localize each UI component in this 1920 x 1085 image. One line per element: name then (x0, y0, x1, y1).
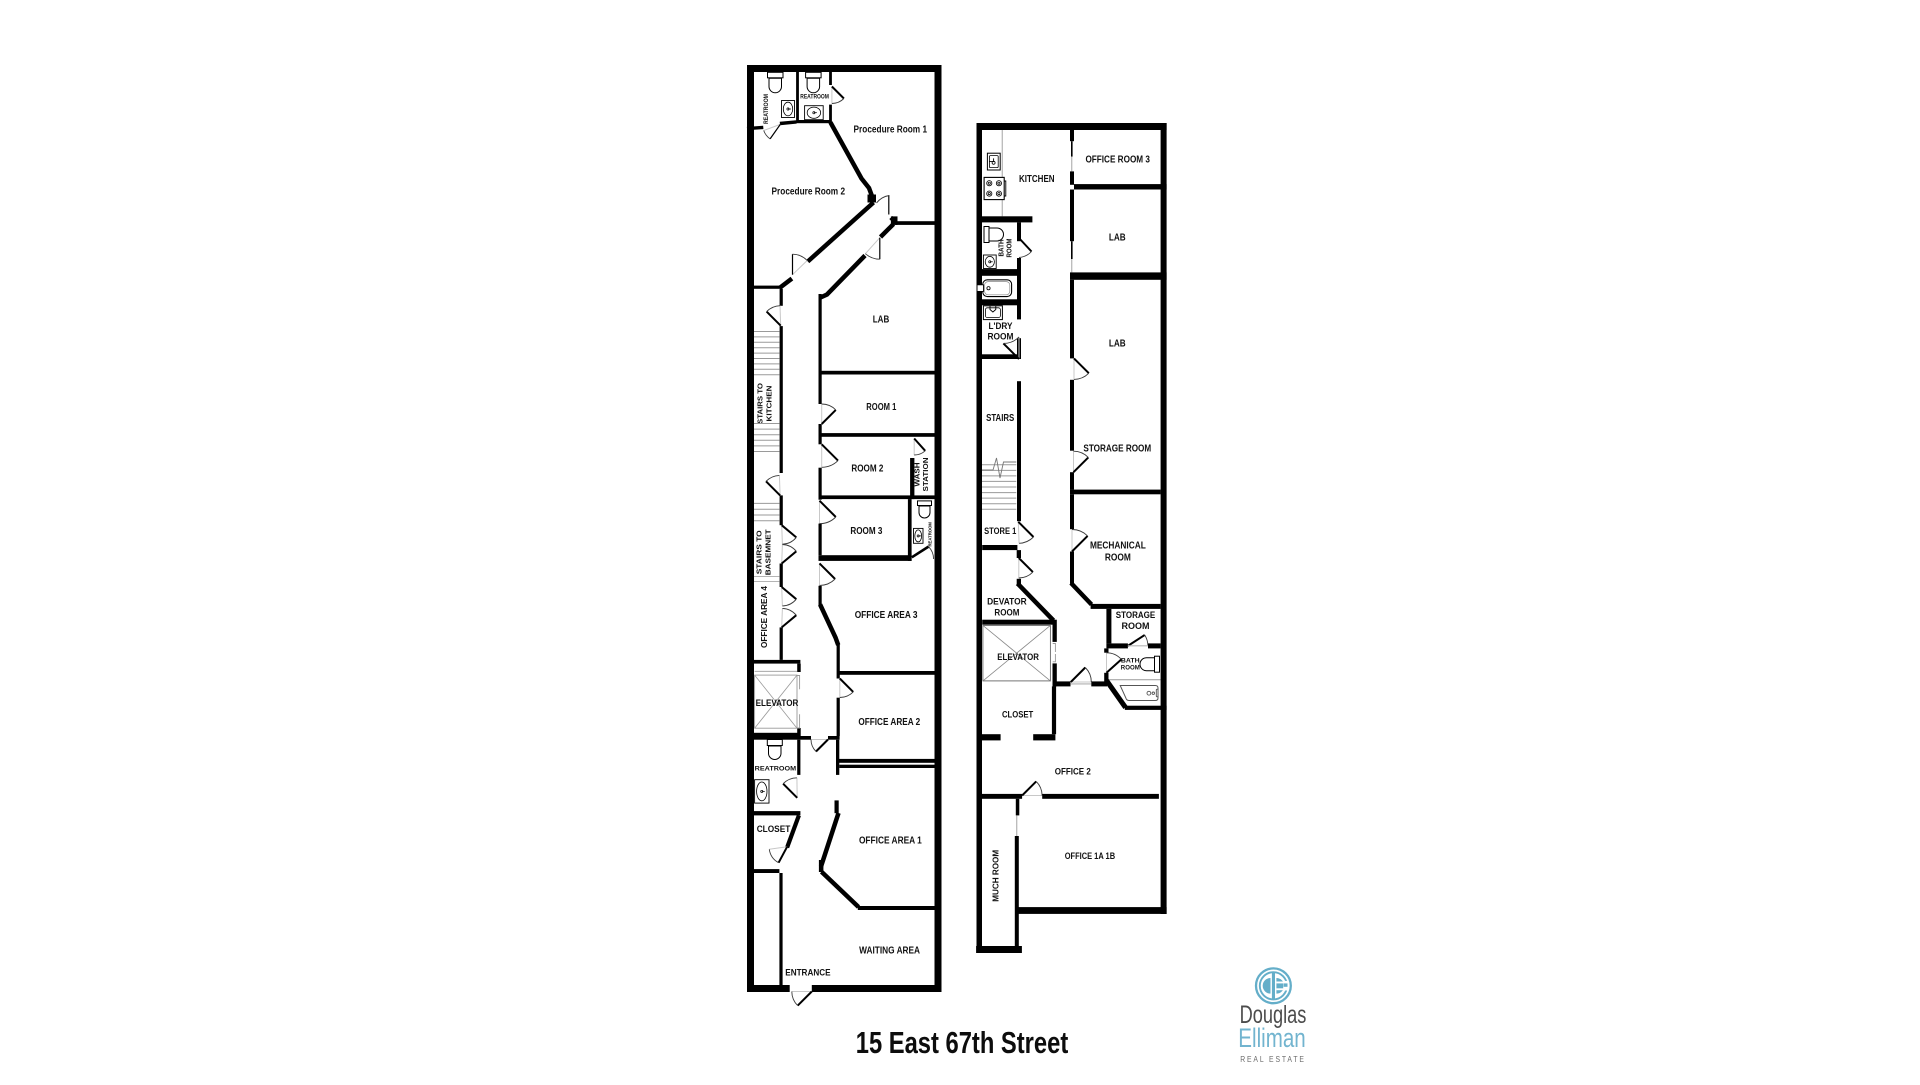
svg-text:WAITING AREA: WAITING AREA (859, 945, 920, 956)
svg-text:OFFICE 1A 1B: OFFICE 1A 1B (1065, 851, 1116, 862)
svg-text:STORAGE ROOM: STORAGE ROOM (1083, 443, 1151, 454)
svg-text:OFFICE 2: OFFICE 2 (1055, 766, 1091, 777)
svg-text:ROOM: ROOM (1121, 665, 1140, 672)
svg-text:OFFICE ROOM 3: OFFICE ROOM 3 (1085, 155, 1150, 166)
svg-text:CLOSET: CLOSET (1002, 710, 1033, 721)
svg-text:MECHANICAL: MECHANICAL (1090, 541, 1146, 552)
svg-text:BATH: BATH (1121, 657, 1140, 664)
svg-text:MUCH ROOM: MUCH ROOM (991, 850, 1001, 902)
svg-text:STATION: STATION (923, 458, 930, 492)
svg-text:STORE 1: STORE 1 (984, 526, 1017, 537)
svg-text:15 East 67th Street: 15 East 67th Street (856, 1025, 1069, 1060)
svg-text:REATROOM: REATROOM (755, 766, 797, 773)
svg-text:LAB: LAB (1109, 233, 1126, 244)
svg-text:ROOM 3: ROOM 3 (850, 526, 882, 537)
svg-text:STAIRS TO: STAIRS TO (755, 530, 764, 574)
svg-text:ROOM: ROOM (1122, 621, 1150, 632)
svg-text:LAB: LAB (873, 315, 890, 326)
svg-text:ROOM: ROOM (1007, 238, 1014, 257)
svg-text:WASH: WASH (915, 463, 922, 487)
svg-text:ROOM 1: ROOM 1 (866, 402, 896, 413)
svg-text:REATROOM: REATROOM (763, 94, 770, 124)
svg-text:ENTRANCE: ENTRANCE (785, 967, 830, 978)
svg-text:STORAGE: STORAGE (1116, 610, 1156, 621)
svg-text:L'DRY: L'DRY (989, 321, 1013, 331)
svg-text:ROOM 2: ROOM 2 (851, 464, 883, 475)
svg-text:Procedure Room 1: Procedure Room 1 (854, 125, 928, 136)
svg-text:Elliman: Elliman (1238, 1023, 1305, 1053)
svg-text:CLOSET: CLOSET (757, 824, 791, 835)
svg-text:KITCHEN: KITCHEN (765, 386, 774, 422)
svg-text:STAIRS: STAIRS (986, 413, 1014, 424)
svg-text:OFFICE AREA 1: OFFICE AREA 1 (859, 836, 922, 847)
svg-text:KITCHEN: KITCHEN (1019, 174, 1055, 185)
svg-text:DEVATOR: DEVATOR (987, 597, 1027, 608)
svg-text:OFFICE AREA 3: OFFICE AREA 3 (855, 610, 918, 621)
svg-text:REATROOM: REATROOM (800, 93, 829, 100)
svg-text:ROOM: ROOM (1105, 553, 1131, 564)
svg-text:REATROOM: REATROOM (928, 522, 934, 547)
svg-text:BASEMNET: BASEMNET (764, 529, 773, 576)
svg-text:REAL ESTATE: REAL ESTATE (1240, 1055, 1306, 1064)
svg-text:ROOM: ROOM (994, 608, 1019, 619)
svg-text:ROOM: ROOM (988, 332, 1014, 342)
svg-text:BATH: BATH (999, 240, 1006, 257)
svg-text:LAB: LAB (1109, 338, 1126, 349)
svg-text:ELEVATOR: ELEVATOR (997, 652, 1039, 663)
svg-text:OFFICE AREA 4: OFFICE AREA 4 (760, 585, 769, 648)
svg-text:Procedure Room 2: Procedure Room 2 (772, 186, 846, 197)
svg-text:STAIRS TO: STAIRS TO (756, 383, 765, 424)
svg-text:ELEVATOR: ELEVATOR (756, 698, 799, 709)
svg-text:OFFICE AREA 2: OFFICE AREA 2 (858, 717, 920, 728)
